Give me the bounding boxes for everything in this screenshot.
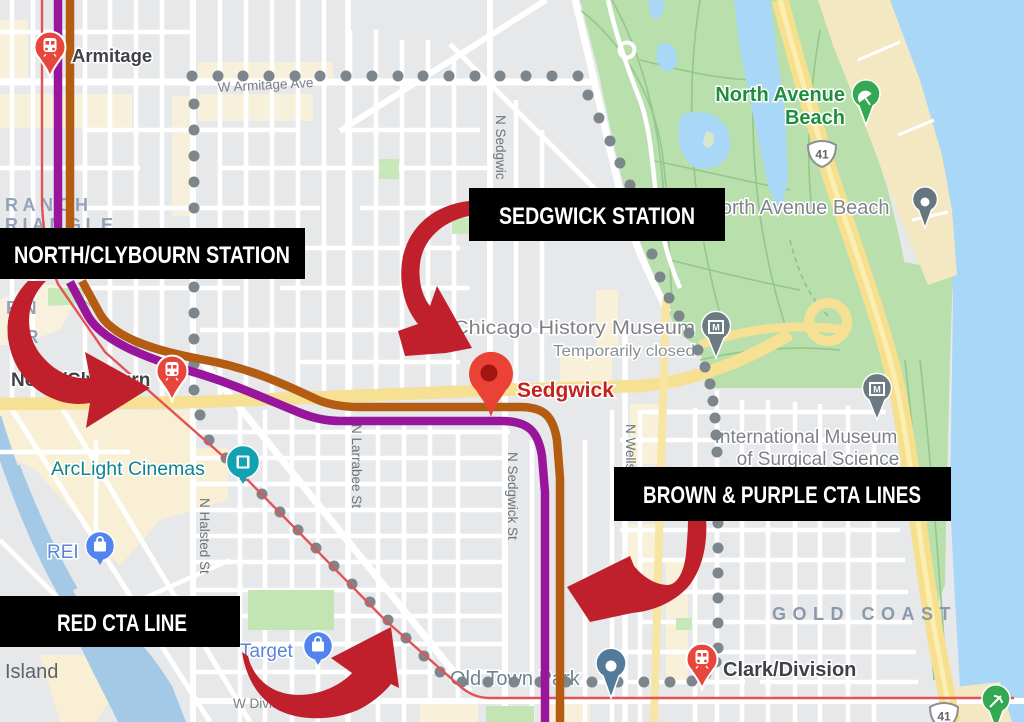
svg-text:N Halsted St: N Halsted St xyxy=(197,498,212,574)
svg-text:BROWN & PURPLE CTA LINES: BROWN & PURPLE CTA LINES xyxy=(643,482,921,509)
svg-text:N Sedgwic: N Sedgwic xyxy=(493,115,508,180)
svg-text:REI: REI xyxy=(47,542,79,563)
svg-text:GOLD COAST: GOLD COAST xyxy=(772,604,957,624)
svg-text:SEDGWICK STATION: SEDGWICK STATION xyxy=(499,203,695,230)
svg-text:N Larrabee St: N Larrabee St xyxy=(349,424,364,508)
svg-text:Sedgwick: Sedgwick xyxy=(517,379,614,402)
svg-text:Beach: Beach xyxy=(785,107,845,129)
svg-text:of Surgical Science: of Surgical Science xyxy=(737,449,900,470)
svg-text:41: 41 xyxy=(937,710,951,722)
svg-text:ArcLight Cinemas: ArcLight Cinemas xyxy=(51,458,205,480)
svg-text:41: 41 xyxy=(815,148,829,162)
svg-text:Clark/Division: Clark/Division xyxy=(723,659,856,681)
svg-text:North Avenue Beach: North Avenue Beach xyxy=(706,197,889,219)
svg-text:Chicago History Museum: Chicago History Museum xyxy=(453,317,695,339)
svg-text:Island: Island xyxy=(5,661,58,683)
svg-text:M: M xyxy=(873,385,881,395)
svg-text:RED CTA LINE: RED CTA LINE xyxy=(57,610,187,637)
svg-text:M: M xyxy=(712,323,720,333)
svg-text:RANCH: RANCH xyxy=(5,195,93,215)
svg-text:N Sedgwick St: N Sedgwick St xyxy=(505,452,520,540)
svg-text:International Museum: International Museum xyxy=(715,427,898,448)
svg-text:North Avenue: North Avenue xyxy=(715,84,845,106)
svg-text:NORTH/CLYBOURN STATION: NORTH/CLYBOURN STATION xyxy=(14,242,290,269)
svg-text:Temporarily closed: Temporarily closed xyxy=(553,343,695,360)
svg-text:Armitage: Armitage xyxy=(72,45,152,66)
